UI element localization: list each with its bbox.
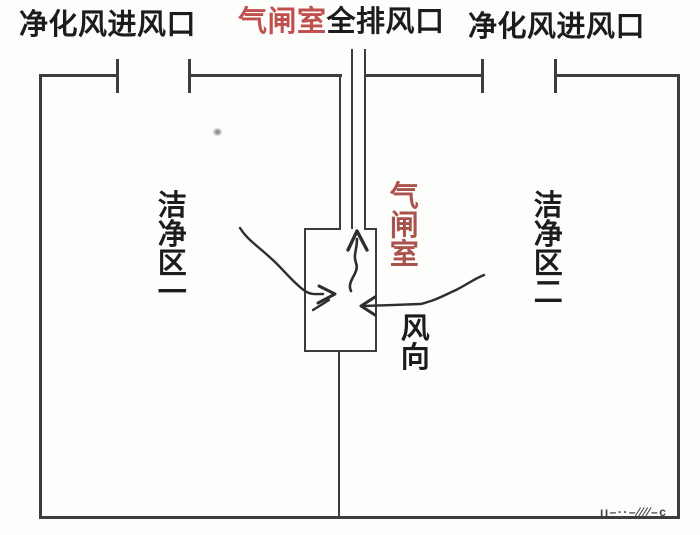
watermark: ıı–··–⁄⁄⁄⁄–c [600,505,667,519]
zone1-arrow-curve [240,228,323,294]
airflow-up-arrow [348,231,367,291]
scan-artifact-dot [214,129,221,135]
airflow-from-zone2-arrow [361,275,484,315]
airflow-arrows-layer [0,0,700,535]
zone2-arrow-curve [364,275,484,306]
airflow-from-zone1-arrow [240,228,335,310]
cleanroom-airlock-diagram: 净化风进风口 气闸室全排风口 净化风进风口 洁净区一 洁净区二 气闸室 风向 [0,0,700,535]
